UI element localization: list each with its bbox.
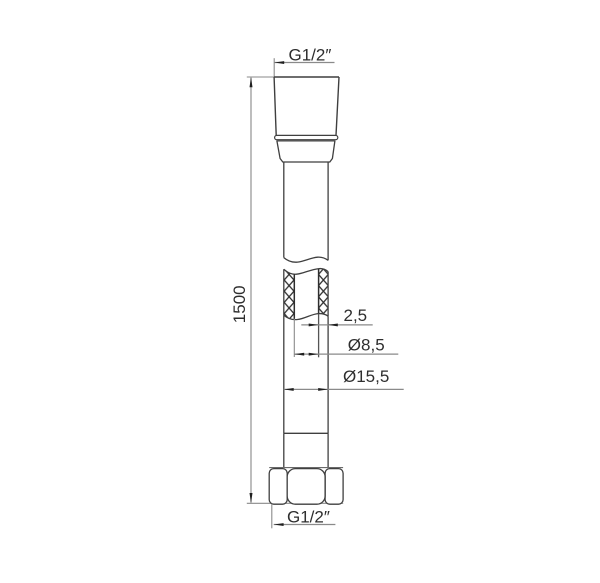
svg-text:1500: 1500 bbox=[230, 285, 249, 323]
svg-text:Ø8,5: Ø8,5 bbox=[348, 335, 385, 354]
svg-text:G1/2″: G1/2″ bbox=[289, 45, 332, 64]
svg-text:G1/2″: G1/2″ bbox=[287, 507, 330, 526]
svg-text:2,5: 2,5 bbox=[344, 306, 368, 325]
svg-text:Ø15,5: Ø15,5 bbox=[343, 367, 389, 386]
